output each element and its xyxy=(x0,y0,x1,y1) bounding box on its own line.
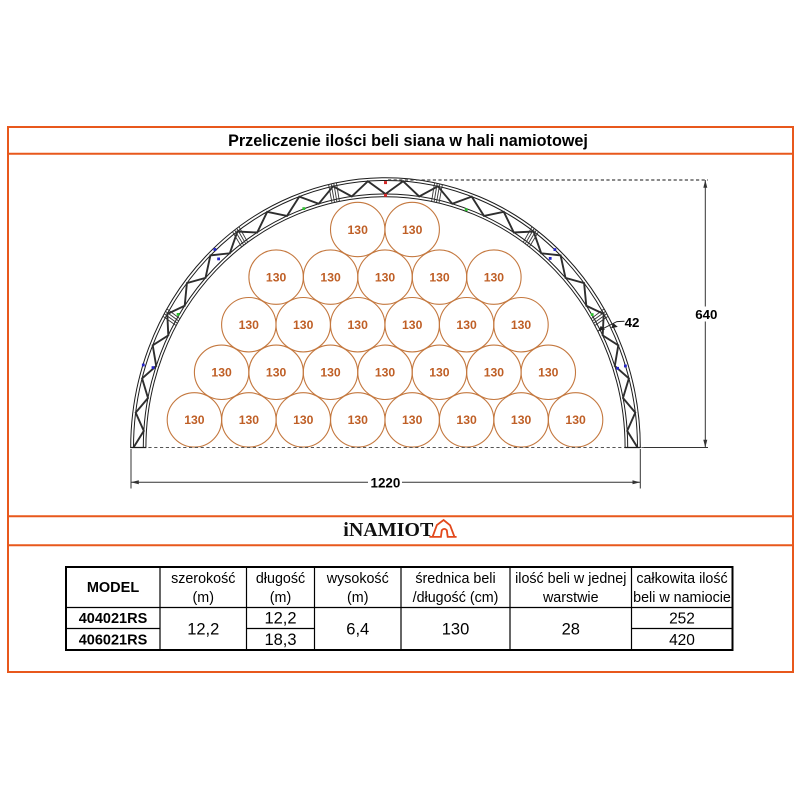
svg-text:130: 130 xyxy=(266,270,287,284)
svg-text:130: 130 xyxy=(266,366,287,380)
svg-text:404021RS: 404021RS xyxy=(79,611,148,627)
svg-text:130: 130 xyxy=(348,413,369,427)
svg-text:18,3: 18,3 xyxy=(264,631,296,649)
svg-text:12,2: 12,2 xyxy=(264,610,296,628)
svg-text:iNAMIOT: iNAMIOT xyxy=(343,519,434,541)
svg-text:12,2: 12,2 xyxy=(187,621,219,639)
svg-text:130: 130 xyxy=(211,366,232,380)
svg-text:6,4: 6,4 xyxy=(346,621,369,639)
svg-text:130: 130 xyxy=(442,621,470,639)
svg-text:130: 130 xyxy=(348,318,369,332)
svg-text:130: 130 xyxy=(320,366,341,380)
svg-text:Przeliczenie ilości beli siana: Przeliczenie ilości beli siana w hali na… xyxy=(228,132,588,150)
svg-text:szerokość: szerokość xyxy=(171,571,235,587)
svg-text:MODEL: MODEL xyxy=(87,580,140,596)
svg-text:/długość (cm): /długość (cm) xyxy=(413,590,499,606)
svg-text:wysokość: wysokość xyxy=(326,571,389,587)
svg-text:130: 130 xyxy=(484,366,505,380)
svg-text:130: 130 xyxy=(429,270,450,284)
svg-text:130: 130 xyxy=(239,413,260,427)
svg-text:130: 130 xyxy=(565,413,586,427)
svg-text:406021RS: 406021RS xyxy=(79,633,148,649)
svg-text:130: 130 xyxy=(511,318,532,332)
svg-text:130: 130 xyxy=(293,318,314,332)
svg-text:(m): (m) xyxy=(347,590,368,606)
svg-text:130: 130 xyxy=(538,366,559,380)
svg-text:130: 130 xyxy=(375,366,396,380)
svg-text:130: 130 xyxy=(511,413,532,427)
svg-text:130: 130 xyxy=(402,318,423,332)
svg-text:640: 640 xyxy=(695,307,717,322)
svg-text:130: 130 xyxy=(375,270,396,284)
svg-text:130: 130 xyxy=(456,413,477,427)
svg-text:całkowita ilość: całkowita ilość xyxy=(636,571,727,587)
svg-text:(m): (m) xyxy=(270,590,291,606)
svg-text:130: 130 xyxy=(293,413,314,427)
svg-text:130: 130 xyxy=(320,270,341,284)
svg-text:42: 42 xyxy=(625,315,640,330)
svg-text:28: 28 xyxy=(562,621,580,639)
svg-text:420: 420 xyxy=(669,632,695,649)
svg-text:130: 130 xyxy=(402,413,423,427)
svg-text:130: 130 xyxy=(429,366,450,380)
svg-text:średnica beli: średnica beli xyxy=(415,571,495,587)
svg-text:130: 130 xyxy=(456,318,477,332)
svg-text:ilość beli w jednej: ilość beli w jednej xyxy=(515,571,626,587)
svg-text:1220: 1220 xyxy=(371,476,401,491)
svg-text:130: 130 xyxy=(184,413,205,427)
svg-text:(m): (m) xyxy=(193,590,214,606)
svg-text:130: 130 xyxy=(239,318,260,332)
svg-text:130: 130 xyxy=(484,270,505,284)
svg-text:długość: długość xyxy=(256,571,305,587)
svg-text:130: 130 xyxy=(402,223,423,237)
svg-text:130: 130 xyxy=(348,223,369,237)
svg-text:warstwie: warstwie xyxy=(542,590,599,606)
svg-text:252: 252 xyxy=(669,611,695,628)
svg-text:beli w namiocie: beli w namiocie xyxy=(633,590,731,606)
